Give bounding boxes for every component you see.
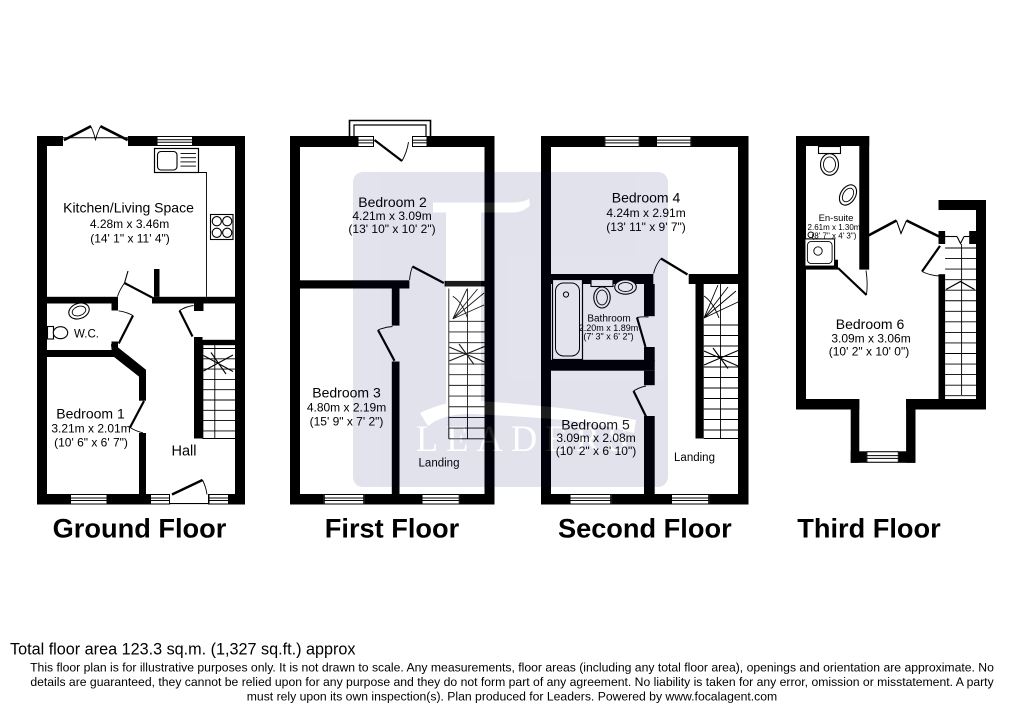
svg-text:details are guaranteed, they c: details are guaranteed, they cannot be r… bbox=[30, 675, 994, 689]
svg-text:(10' 2" x 10' 0"): (10' 2" x 10' 0") bbox=[829, 345, 909, 359]
svg-text:Second Floor: Second Floor bbox=[558, 513, 732, 544]
svg-text:(8' 7" x 4' 3"): (8' 7" x 4' 3") bbox=[812, 232, 857, 241]
svg-text:This floor plan is for illustr: This floor plan is for illustrative purp… bbox=[30, 661, 994, 675]
svg-text:Landing: Landing bbox=[674, 452, 715, 464]
svg-text:3.09m x 3.06m: 3.09m x 3.06m bbox=[831, 332, 910, 346]
svg-text:First Floor: First Floor bbox=[325, 513, 460, 544]
svg-text:must rely upon its own inspect: must rely upon its own inspection(s). Pl… bbox=[247, 690, 777, 704]
svg-text:3.21m x 2.01m: 3.21m x 2.01m bbox=[51, 422, 130, 436]
svg-text:Ground Floor: Ground Floor bbox=[53, 513, 227, 544]
svg-text:Third Floor: Third Floor bbox=[797, 513, 941, 544]
svg-text:Hall: Hall bbox=[172, 444, 197, 460]
svg-text:Bedroom 6: Bedroom 6 bbox=[836, 316, 905, 332]
svg-text:(10' 6" x 6' 7"): (10' 6" x 6' 7") bbox=[54, 436, 128, 450]
svg-text:W.C.: W.C. bbox=[74, 329, 99, 341]
svg-text:Kitchen/Living Space: Kitchen/Living Space bbox=[63, 200, 194, 216]
svg-text:4.28m x 3.46m: 4.28m x 3.46m bbox=[90, 217, 169, 231]
svg-text:Total floor area 123.3 sq.m. (: Total floor area 123.3 sq.m. (1,327 sq.f… bbox=[10, 641, 356, 659]
svg-text:LEADERS: LEADERS bbox=[416, 418, 636, 459]
svg-text:(14' 1" x 11' 4"): (14' 1" x 11' 4") bbox=[90, 232, 170, 246]
svg-text:Bedroom 1: Bedroom 1 bbox=[56, 406, 125, 422]
